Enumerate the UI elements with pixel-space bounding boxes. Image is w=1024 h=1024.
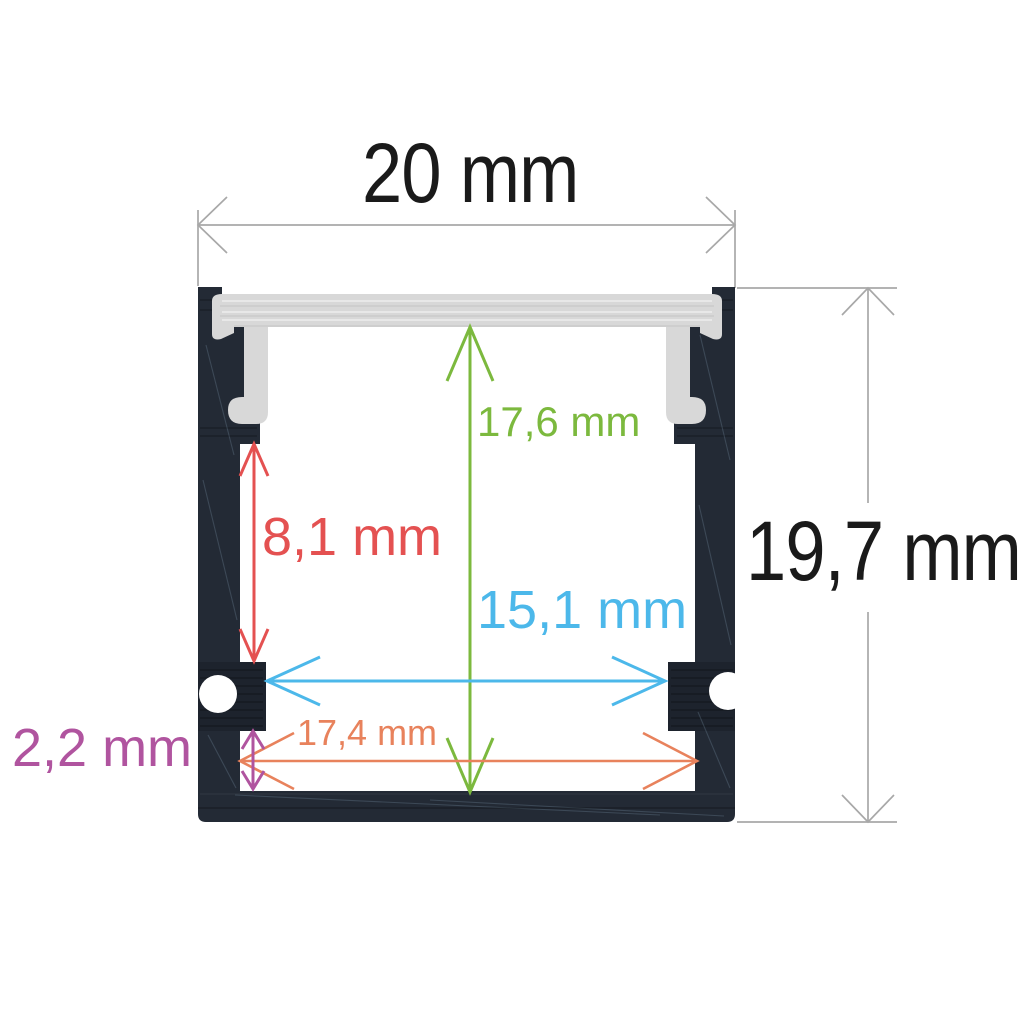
dimension-label-mid-inner-width: 15,1 mm — [477, 583, 687, 637]
dimension-label-bottom-ledge-height: 2,2 mm — [12, 721, 192, 775]
screw-groove-right — [709, 672, 747, 710]
dimension-arrow-mid-inner-width — [267, 657, 665, 705]
dimension-label-inner-height: 17,6 mm — [477, 401, 640, 443]
dimension-label-upper-side-height: 8,1 mm — [262, 510, 442, 564]
dimension-arrow-inner-height — [447, 327, 493, 792]
dimension-label-outer-height: 19,7 mm — [746, 509, 1021, 593]
dimension-label-outer-width: 20 mm — [362, 131, 578, 215]
screw-groove-left — [199, 675, 237, 713]
profile-cross-section-diagram: 20 mm 19,7 mm 17,6 mm 8,1 mm 15,1 mm 17,… — [0, 0, 1024, 1024]
diffuser — [212, 294, 722, 424]
dimension-label-bottom-inner-width: 17,4 mm — [297, 715, 437, 751]
